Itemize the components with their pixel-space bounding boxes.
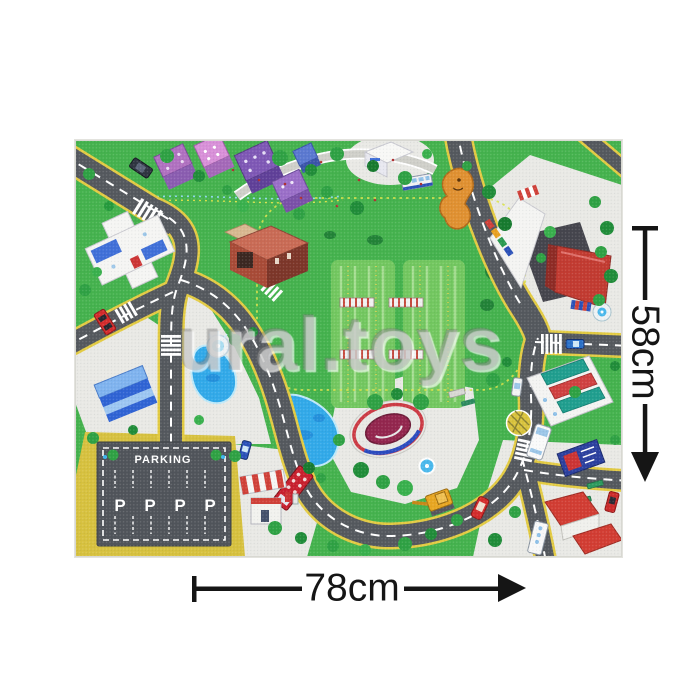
dimension-line-left (194, 587, 302, 592)
product-photo-canvas: PARKING P P P P (0, 0, 700, 700)
dimension-line-lower (643, 404, 648, 454)
height-dimension-annotation: 58cm (618, 222, 672, 484)
arrow-right-icon (498, 574, 526, 602)
playmat-scene: PARKING P P P P (75, 140, 622, 557)
arrow-down-icon (631, 452, 659, 482)
halftone-overlay-dark (75, 140, 622, 557)
playmat-photo: PARKING P P P P (75, 140, 622, 557)
dimension-line-upper (643, 230, 648, 300)
height-dimension-label: 58cm (624, 304, 667, 399)
width-dimension-annotation: 78cm (178, 560, 528, 616)
width-dimension-label: 78cm (304, 567, 399, 610)
dimension-cap-top (632, 226, 658, 231)
dimension-line-right (404, 587, 500, 592)
